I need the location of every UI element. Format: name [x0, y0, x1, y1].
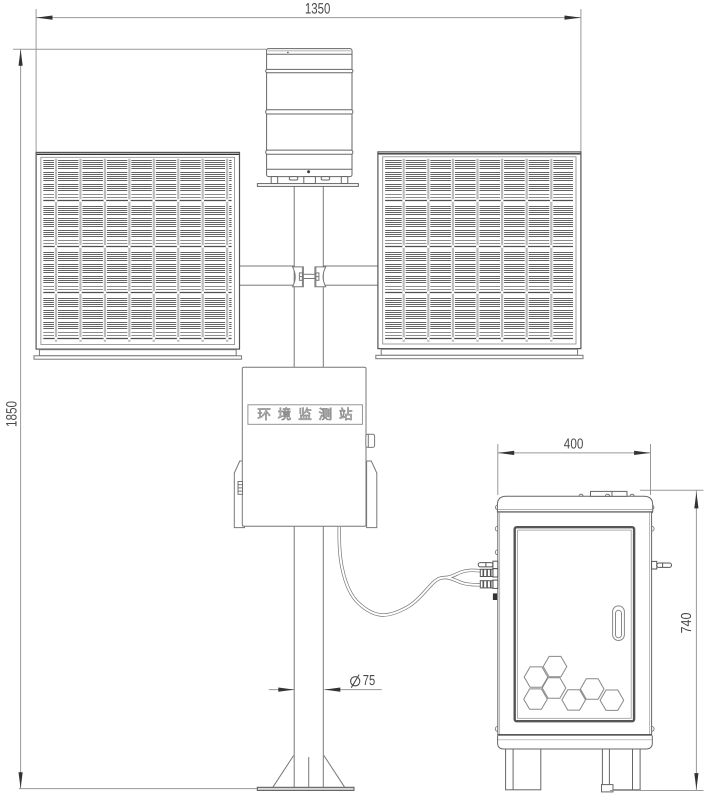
svg-text:740: 740: [679, 613, 695, 634]
svg-text:400: 400: [564, 437, 584, 453]
svg-text:1350: 1350: [305, 1, 331, 18]
svg-text:1850: 1850: [4, 401, 21, 427]
svg-text:75: 75: [363, 673, 376, 689]
svg-text:环境监测站: 环境监测站: [257, 407, 359, 422]
